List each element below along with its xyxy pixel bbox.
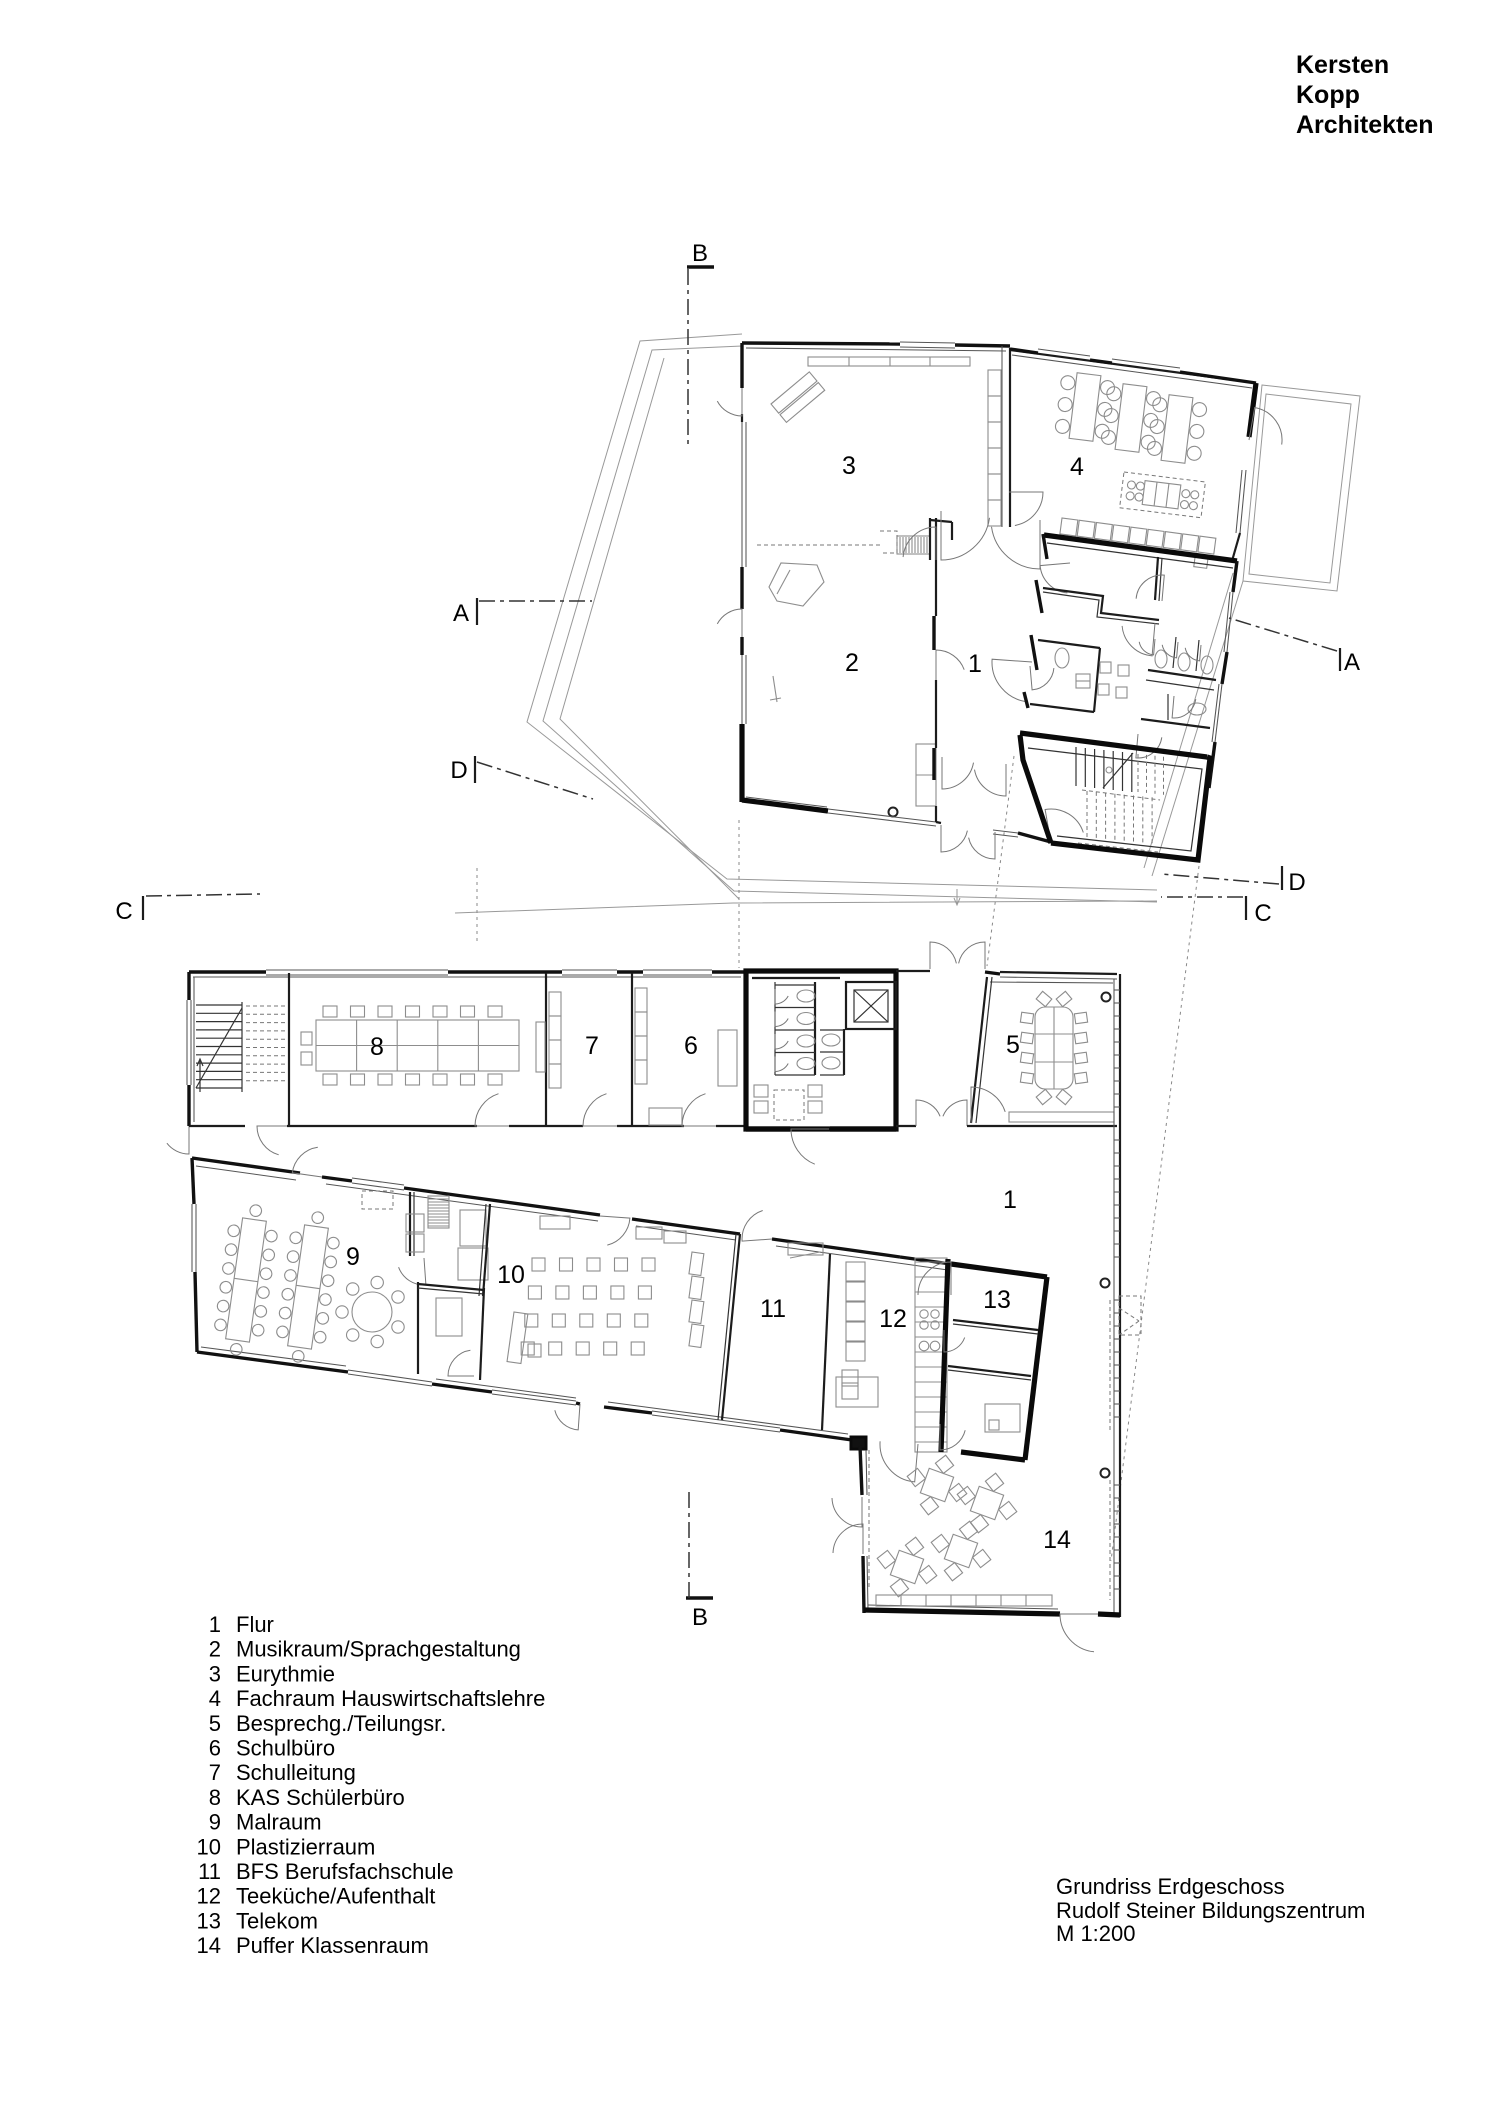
- svg-text:Grundriss Erdgeschoss: Grundriss Erdgeschoss: [1056, 1874, 1285, 1899]
- svg-text:10: 10: [497, 1261, 525, 1289]
- svg-text:13: 13: [983, 1286, 1011, 1314]
- svg-text:4: 4: [1070, 453, 1084, 481]
- svg-text:11: 11: [760, 1295, 786, 1323]
- svg-text:12: 12: [879, 1305, 907, 1333]
- svg-text:4: 4: [209, 1686, 221, 1711]
- svg-text:7: 7: [585, 1032, 599, 1060]
- svg-text:B: B: [692, 240, 708, 267]
- svg-text:14: 14: [1043, 1526, 1071, 1554]
- svg-text:BFS Berufsfachschule: BFS Berufsfachschule: [236, 1859, 454, 1884]
- svg-text:Kersten: Kersten: [1296, 51, 1389, 79]
- svg-text:6: 6: [684, 1032, 698, 1060]
- svg-text:2: 2: [209, 1637, 221, 1662]
- svg-text:3: 3: [209, 1661, 221, 1686]
- svg-text:Rudolf Steiner Bildungszentrum: Rudolf Steiner Bildungszentrum: [1056, 1898, 1365, 1923]
- svg-text:C: C: [115, 898, 132, 925]
- svg-text:5: 5: [209, 1711, 221, 1736]
- svg-text:Musikraum/Sprachgestaltung: Musikraum/Sprachgestaltung: [236, 1637, 521, 1662]
- svg-text:Teeküche/Aufenthalt: Teeküche/Aufenthalt: [236, 1884, 435, 1909]
- svg-text:Architekten: Architekten: [1296, 111, 1434, 139]
- svg-text:9: 9: [346, 1243, 360, 1271]
- svg-text:14: 14: [197, 1933, 221, 1958]
- svg-text:Puffer Klassenraum: Puffer Klassenraum: [236, 1933, 429, 1958]
- svg-text:A: A: [1344, 649, 1360, 676]
- svg-text:Flur: Flur: [236, 1612, 274, 1637]
- svg-text:13: 13: [197, 1908, 221, 1933]
- svg-text:10: 10: [197, 1834, 221, 1859]
- svg-text:Besprechg./Teilungsr.: Besprechg./Teilungsr.: [236, 1711, 446, 1736]
- svg-text:8: 8: [370, 1033, 384, 1061]
- svg-text:Kopp: Kopp: [1296, 81, 1360, 109]
- svg-text:Malraum: Malraum: [236, 1810, 322, 1835]
- svg-text:C: C: [1254, 900, 1271, 927]
- svg-text:1: 1: [209, 1612, 221, 1637]
- svg-text:9: 9: [209, 1810, 221, 1835]
- svg-text:Telekom: Telekom: [236, 1908, 318, 1933]
- svg-text:Fachraum Hauswirtschaftslehre: Fachraum Hauswirtschaftslehre: [236, 1686, 545, 1711]
- svg-text:1: 1: [1003, 1186, 1017, 1214]
- svg-text:7: 7: [209, 1760, 221, 1785]
- svg-text:3: 3: [842, 452, 856, 480]
- svg-text:Plastizierraum: Plastizierraum: [236, 1834, 375, 1859]
- svg-text:6: 6: [209, 1736, 221, 1761]
- svg-text:A: A: [453, 600, 469, 627]
- svg-text:Eurythmie: Eurythmie: [236, 1661, 335, 1686]
- svg-text:8: 8: [209, 1785, 221, 1810]
- svg-text:1: 1: [968, 650, 982, 678]
- svg-text:D: D: [1288, 869, 1305, 896]
- svg-text:D: D: [450, 757, 467, 784]
- svg-text:B: B: [692, 1604, 708, 1631]
- svg-text:12: 12: [197, 1884, 221, 1909]
- svg-text:2: 2: [845, 649, 859, 677]
- svg-text:M 1:200: M 1:200: [1056, 1921, 1136, 1946]
- svg-text:Schulleitung: Schulleitung: [236, 1760, 356, 1785]
- svg-text:11: 11: [198, 1859, 221, 1884]
- svg-text:5: 5: [1006, 1031, 1020, 1059]
- svg-text:Schulbüro: Schulbüro: [236, 1736, 335, 1761]
- svg-text:KAS Schülerbüro: KAS Schülerbüro: [236, 1785, 405, 1810]
